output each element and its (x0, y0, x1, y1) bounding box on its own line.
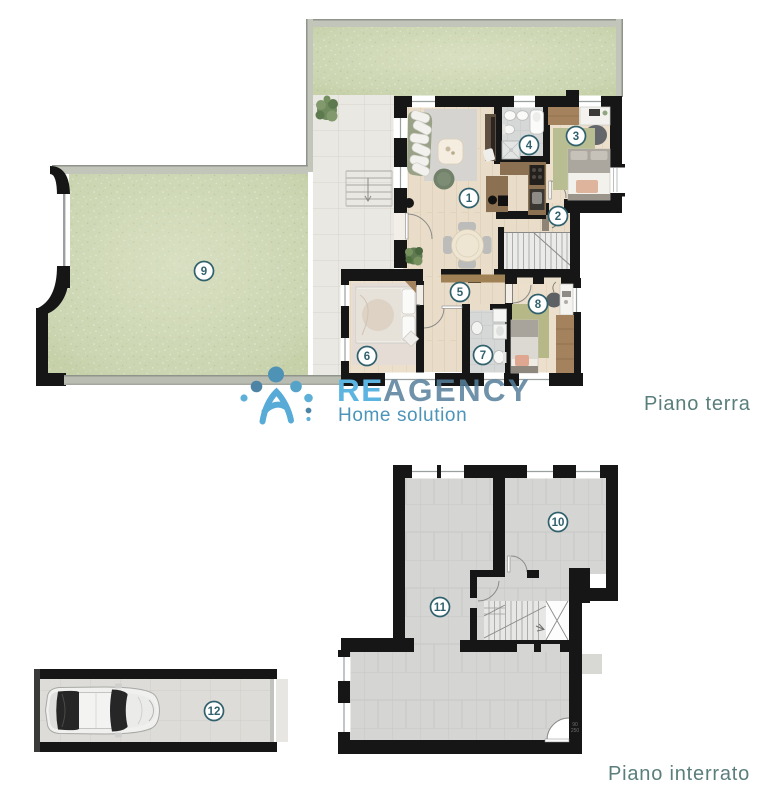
svg-text:250: 250 (571, 728, 580, 734)
svg-text:12: 12 (208, 706, 221, 718)
svg-text:AGENCY: AGENCY (383, 372, 531, 408)
svg-text:Piano terra: Piano terra (644, 393, 751, 415)
svg-text:10: 10 (552, 517, 565, 529)
svg-text:3: 3 (573, 131, 579, 143)
svg-text:Home solution: Home solution (338, 405, 467, 426)
svg-text:1: 1 (466, 193, 473, 205)
svg-text:9: 9 (201, 266, 207, 278)
svg-text:5: 5 (457, 287, 464, 299)
svg-text:4: 4 (526, 140, 533, 152)
svg-text:2: 2 (555, 211, 561, 223)
svg-text:8: 8 (535, 299, 542, 311)
svg-text:6: 6 (364, 351, 370, 363)
svg-text:RE: RE (337, 372, 384, 408)
svg-text:Piano interrato: Piano interrato (608, 763, 750, 785)
svg-text:7: 7 (480, 350, 486, 362)
svg-text:11: 11 (434, 602, 447, 614)
